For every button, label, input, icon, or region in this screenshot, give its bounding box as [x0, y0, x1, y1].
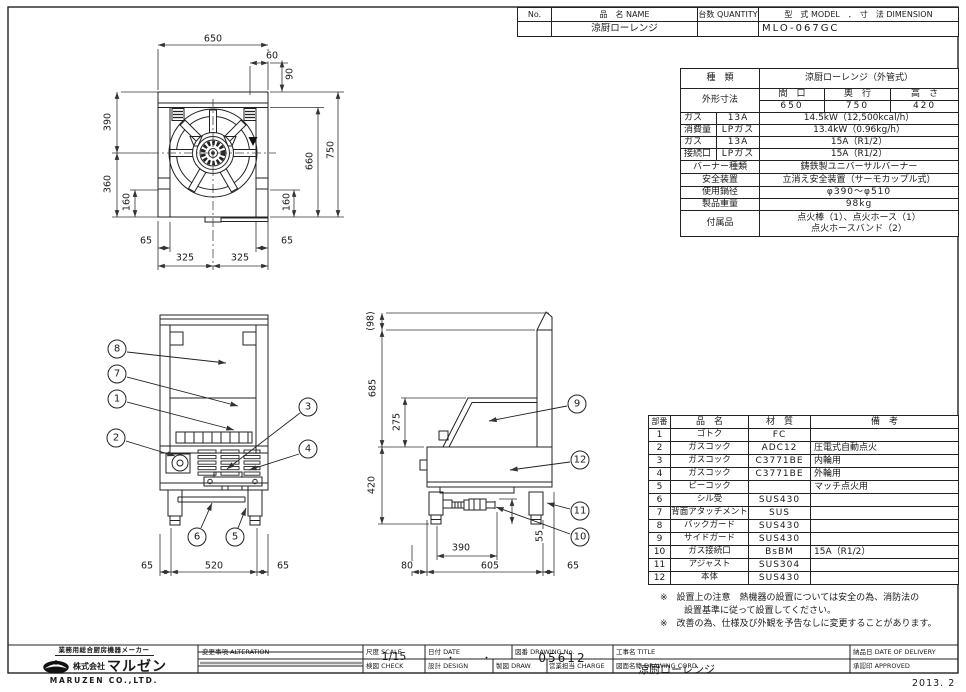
parts-row: 9サイドガードSUS430 [649, 533, 959, 546]
part-material: C3771BE [749, 468, 811, 481]
spec-info-label: 使用鍋径 [681, 187, 760, 199]
part-note [811, 494, 959, 507]
spec-gas-row-type: 13A [717, 137, 760, 149]
spec-gas-row-type: LPガス [717, 149, 760, 161]
spec-gas-row-label: ガス [681, 137, 717, 149]
part-note [811, 429, 959, 442]
dim-label: 360 [103, 174, 113, 194]
parts-header-note: 備 考 [811, 416, 959, 429]
spec-info-label: バーナー種類 [681, 161, 760, 174]
doc-header-model-value: MLO-067GC [759, 22, 959, 37]
spec-accessory-label: 付属品 [681, 211, 760, 237]
parts-row: 3ガスコックC3771BE内輪用 [649, 455, 959, 468]
dim-label: 65 [566, 561, 580, 571]
part-note [811, 520, 959, 533]
spec-info-value: 鋳鉄製ユニバーサルバーナー [760, 161, 959, 174]
spec-gas-row-value: 14.5kW（12,500kcal/h） [760, 113, 959, 125]
dim-label: 685 [368, 378, 378, 398]
part-name: ピーコック [671, 481, 749, 494]
parts-header-material: 材 質 [749, 416, 811, 429]
company-tagline: 業務用総合厨房機器メーカー [55, 644, 154, 656]
spec-info-value: 立消え安全装置（サーモカップル式） [760, 174, 959, 187]
spec-gas-row-label: ガス [681, 113, 717, 125]
part-name: ゴトク [671, 429, 749, 442]
parts-row: 1ゴトクFC [649, 429, 959, 442]
note-line-1: ※ 設置上の注意 熱機器の設置については安全の為、消防法の [660, 592, 919, 604]
dim-label: 660 [305, 151, 315, 171]
dim-label: 65 [276, 561, 290, 571]
part-name: バックガード [671, 520, 749, 533]
doc-header-model-label: 型 式 MODEL ． 寸 法 DIMENSION [759, 8, 959, 22]
spec-info-value: 98kg [760, 199, 959, 211]
dim-label: 390 [103, 112, 113, 132]
doc-header-name-label: 品 名 NAME [552, 8, 698, 22]
spec-info-value: φ390～φ510 [760, 187, 959, 199]
callout-10: 10 [571, 528, 590, 547]
callout-11: 11 [571, 502, 590, 521]
title-label: 工事名 TITLE [616, 646, 655, 656]
doc-header-no-label: No. [518, 8, 552, 22]
dim-label: 420 [367, 475, 377, 495]
check-label: 検図 CHECK [366, 660, 403, 670]
spec-dims-col-d: 奥 行 [825, 89, 891, 101]
dim-label: 650 [203, 34, 223, 44]
design-label: 設計 DESIGN [428, 660, 468, 670]
issue-date: 2013. 2 [912, 678, 955, 689]
part-material: SUS430 [749, 520, 811, 533]
part-name: サイドガード [671, 533, 749, 546]
spec-info-label: 安全装置 [681, 174, 760, 187]
spec-dims-val-h: 420 [891, 101, 959, 113]
callout-8: 8 [108, 340, 127, 359]
callout-7: 7 [108, 365, 127, 384]
note-line-2: 設置基準に従って設置してください。 [684, 605, 836, 617]
part-material: FC [749, 429, 811, 442]
dim-label: 65 [280, 236, 294, 246]
spec-kind-value: 涼厨ローレンジ（外管式） [760, 69, 959, 89]
part-material: SUS [749, 507, 811, 520]
part-name: 背面アタッチメント [671, 507, 749, 520]
dim-label: 750 [326, 140, 336, 160]
spec-dims-val-w: 650 [760, 101, 825, 113]
delivery-label: 納品日 DATE OF DELIVERY [853, 646, 936, 656]
company-prefix: 株式会社 [73, 661, 105, 672]
part-no: 7 [649, 507, 671, 520]
part-note: 圧電式自動点火 [811, 442, 959, 455]
part-no: 1 [649, 429, 671, 442]
part-name: ガスコック [671, 442, 749, 455]
dim-label: 325 [175, 253, 195, 263]
dim-label: 325 [230, 253, 250, 263]
part-material: SUS304 [749, 559, 811, 572]
callout-1: 1 [108, 390, 127, 409]
dim-label: 275 [392, 412, 402, 432]
part-name: シル受 [671, 494, 749, 507]
spec-gas-row-label: 接続口 [681, 149, 717, 161]
spec-gas-row-value: 13.4kW（0.96kg/h） [760, 125, 959, 137]
dim-label: 520 [204, 561, 224, 571]
part-material: BsBM [749, 546, 811, 559]
callout-5: 5 [226, 528, 245, 547]
dim-label: 65 [139, 236, 153, 246]
part-material: SUS430 [749, 572, 811, 585]
parts-row: 2ガスコックADC12圧電式自動点火 [649, 442, 959, 455]
spec-accessory-value: 点火棒（1）、点火ホース（1） 点火ホースバンド（2） [760, 211, 959, 237]
callout-3: 3 [299, 398, 318, 417]
part-no: 9 [649, 533, 671, 546]
doc-header-no-value [518, 22, 552, 37]
spec-dims-col-h: 高 さ [891, 89, 959, 101]
part-note [811, 507, 959, 520]
part-note [811, 572, 959, 585]
parts-row: 8バックガードSUS430 [649, 520, 959, 533]
part-name: ガス接続口 [671, 546, 749, 559]
note-line-3: ※ 改善の為、仕様及び外観を予告なしに変更することがあります。 [660, 618, 937, 630]
doc-header-qty-label: 台数 QUANTITY [698, 8, 759, 22]
drawing-sheet: No. 品 名 NAME 台数 QUANTITY 型 式 MODEL ． 寸 法… [0, 0, 966, 692]
spec-info-label: 製品重量 [681, 199, 760, 211]
company-logo-block: 業務用総合厨房機器メーカー 株式会社 マルゼン MARUZEN CO.,LTD. [12, 644, 196, 672]
part-no: 6 [649, 494, 671, 507]
part-material: SUS430 [749, 494, 811, 507]
callout-12: 12 [571, 451, 590, 470]
dim-label: 605 [480, 561, 500, 571]
parts-header-no: 部番 [649, 416, 671, 429]
spec-accessory-line2: 点火ホースバンド（2） [760, 224, 958, 234]
part-note: 15A（R1/2） [811, 546, 959, 559]
spec-gas-row-type: LPガス [717, 125, 760, 137]
part-no: 11 [649, 559, 671, 572]
part-no: 3 [649, 455, 671, 468]
doc-header-table: No. 品 名 NAME 台数 QUANTITY 型 式 MODEL ． 寸 法… [517, 7, 959, 37]
part-note: 内輪用 [811, 455, 959, 468]
part-no: 4 [649, 468, 671, 481]
parts-row: 6シル受SUS430 [649, 494, 959, 507]
parts-row: 4ガスコックC3771BE外輪用 [649, 468, 959, 481]
drawing-cord-value: 涼厨ローレンジ [638, 661, 715, 677]
doc-header-qty-value [698, 22, 759, 37]
dim-label: 390 [451, 543, 471, 553]
dim-label: 160 [282, 192, 292, 212]
part-no: 12 [649, 572, 671, 585]
parts-row: 10ガス接続口BsBM15A（R1/2） [649, 546, 959, 559]
dim-label: 55 [535, 529, 545, 543]
dim-label: (98) [366, 310, 376, 332]
spec-dims-label: 外形寸法 [681, 89, 760, 113]
callout-2: 2 [107, 429, 126, 448]
approved-label: 承認印 APPROVED [853, 660, 910, 670]
parts-row: 5ピーコックマッチ点火用 [649, 481, 959, 494]
part-material: ADC12 [749, 442, 811, 455]
callout-6: 6 [188, 528, 207, 547]
dim-label: 65 [140, 561, 154, 571]
part-no: 2 [649, 442, 671, 455]
spec-gas-row-label: 消費量 [681, 125, 717, 137]
spec-gas-row-type: 13A [717, 113, 760, 125]
maruzen-bird-logo-icon [41, 659, 71, 674]
dim-label: 80 [400, 561, 414, 571]
spec-gas-row-value: 15A（R1/2） [760, 137, 959, 149]
spec-dims-val-d: 750 [825, 101, 891, 113]
parts-table: 部番 品 名 材 質 備 考 1ゴトクFC 2ガスコックADC12圧電式自動点火… [648, 415, 959, 585]
callout-9: 9 [568, 395, 587, 414]
doc-header-name-value: 涼厨ローレンジ [552, 22, 698, 37]
part-no: 5 [649, 481, 671, 494]
company-name: マルゼン [107, 656, 167, 676]
dim-label: 160 [122, 192, 132, 212]
draw-label: 製図 DRAW [496, 660, 531, 670]
part-name: ガスコック [671, 468, 749, 481]
part-material: SUS430 [749, 533, 811, 546]
part-material [749, 481, 811, 494]
company-name-en: MARUZEN CO.,LTD. [50, 676, 159, 685]
part-note [811, 533, 959, 546]
part-note: マッチ点火用 [811, 481, 959, 494]
part-no: 10 [649, 546, 671, 559]
spec-accessory-line1: 点火棒（1）、点火ホース（1） [760, 213, 958, 223]
parts-header-name: 品 名 [671, 416, 749, 429]
part-name: アジャスト [671, 559, 749, 572]
callout-4: 4 [299, 440, 318, 459]
spec-kind-label: 種 類 [681, 69, 760, 89]
alteration-label: 変更事項 ALTERATION [202, 646, 269, 656]
parts-row: 11アジャストSUS304 [649, 559, 959, 572]
part-note: 外輪用 [811, 468, 959, 481]
part-note [811, 559, 959, 572]
charge-label: 営業担当 CHARGE [549, 660, 605, 670]
dim-label: 60 [265, 51, 279, 61]
dim-label: 90 [285, 67, 295, 81]
spec-table: 種 類 涼厨ローレンジ（外管式） 外形寸法 間 口 奥 行 高 さ 650 75… [680, 68, 959, 237]
part-name: ガスコック [671, 455, 749, 468]
parts-row: 7背面アタッチメントSUS [649, 507, 959, 520]
spec-gas-row-value: 15A（R1/2） [760, 149, 959, 161]
part-name: 本体 [671, 572, 749, 585]
part-no: 8 [649, 520, 671, 533]
parts-row: 12本体SUS430 [649, 572, 959, 585]
part-material: C3771BE [749, 455, 811, 468]
spec-dims-col-w: 間 口 [760, 89, 825, 101]
